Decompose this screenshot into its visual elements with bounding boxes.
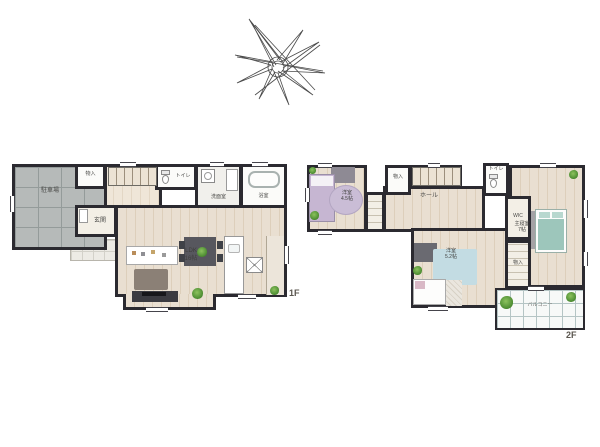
storage-2f-label: 物入 (385, 174, 411, 180)
bed-west-pillow (311, 176, 333, 186)
window-marker (284, 246, 289, 264)
bathtub-icon (248, 171, 280, 188)
plant-icon (270, 286, 279, 295)
island-items (132, 251, 136, 255)
living-rug (134, 269, 168, 290)
stairs-2f (412, 167, 461, 186)
master-label: 主寝室 7帖 (509, 221, 535, 234)
bedroom-south-label: 洋室 5.2帖 (436, 248, 466, 261)
floor1-marker: 1F (289, 288, 300, 298)
refrigerator (246, 257, 263, 273)
bath-label: 浴室 (242, 193, 285, 199)
stairs-1f (108, 167, 157, 186)
plant-icon (413, 266, 422, 275)
window-marker (210, 162, 224, 167)
ldk-label: LDK 16帖 (178, 248, 204, 263)
bedroom-west-label: 洋室 4.5帖 (330, 190, 364, 203)
toilet-1f-label: トイレ (172, 173, 194, 179)
toilet-icon-2f (489, 174, 498, 188)
kitchen-island (126, 246, 178, 265)
window-marker (305, 188, 310, 202)
window-marker (10, 196, 15, 212)
wic-label: WIC (505, 213, 531, 219)
closet-2f-label: 物入 (505, 260, 531, 266)
window-marker (528, 286, 544, 291)
bed-south-pillow (415, 281, 425, 289)
window-marker (120, 162, 136, 167)
storage-1f-label: 物入 (75, 171, 106, 177)
mat-south (446, 280, 462, 306)
window-marker (428, 163, 440, 168)
floorplan-page: 駐車場 物入 トイレ 洗面室 浴室 玄関 LDK 16帖 1F (0, 0, 600, 447)
window-marker (252, 162, 268, 167)
plant-icon (569, 170, 578, 179)
balcony-label: バルコニー (512, 302, 568, 308)
toilet-icon-1f (161, 170, 170, 184)
washroom-label: 洗面室 (196, 194, 241, 200)
window-marker (146, 307, 168, 312)
plant-icon (192, 288, 203, 299)
plant-icon (310, 211, 319, 220)
hall-2f-label: ホール (412, 193, 446, 201)
plant-icon (566, 292, 576, 302)
window-marker (583, 200, 588, 218)
bed-master-pillows (539, 212, 550, 218)
vanity-sink (226, 169, 238, 191)
window-marker (583, 252, 588, 266)
window-marker (238, 294, 256, 299)
washing-machine-icon (201, 169, 215, 183)
window-marker (540, 163, 556, 168)
toilet-2f-label: トイレ (483, 166, 509, 172)
window-marker (318, 230, 332, 235)
entrance-label: 玄関 (86, 218, 114, 226)
window-marker (428, 306, 448, 311)
closet-west-2f (365, 192, 385, 232)
garage-label: 駐車場 (20, 188, 80, 196)
window-marker (318, 163, 332, 168)
plant-icon (309, 167, 316, 174)
kitchen-sink (228, 244, 240, 253)
bed-master-blanket (538, 219, 564, 250)
floor2-marker: 2F (566, 330, 577, 340)
tv-screen (142, 292, 166, 296)
compass-star-icon (225, 5, 335, 110)
